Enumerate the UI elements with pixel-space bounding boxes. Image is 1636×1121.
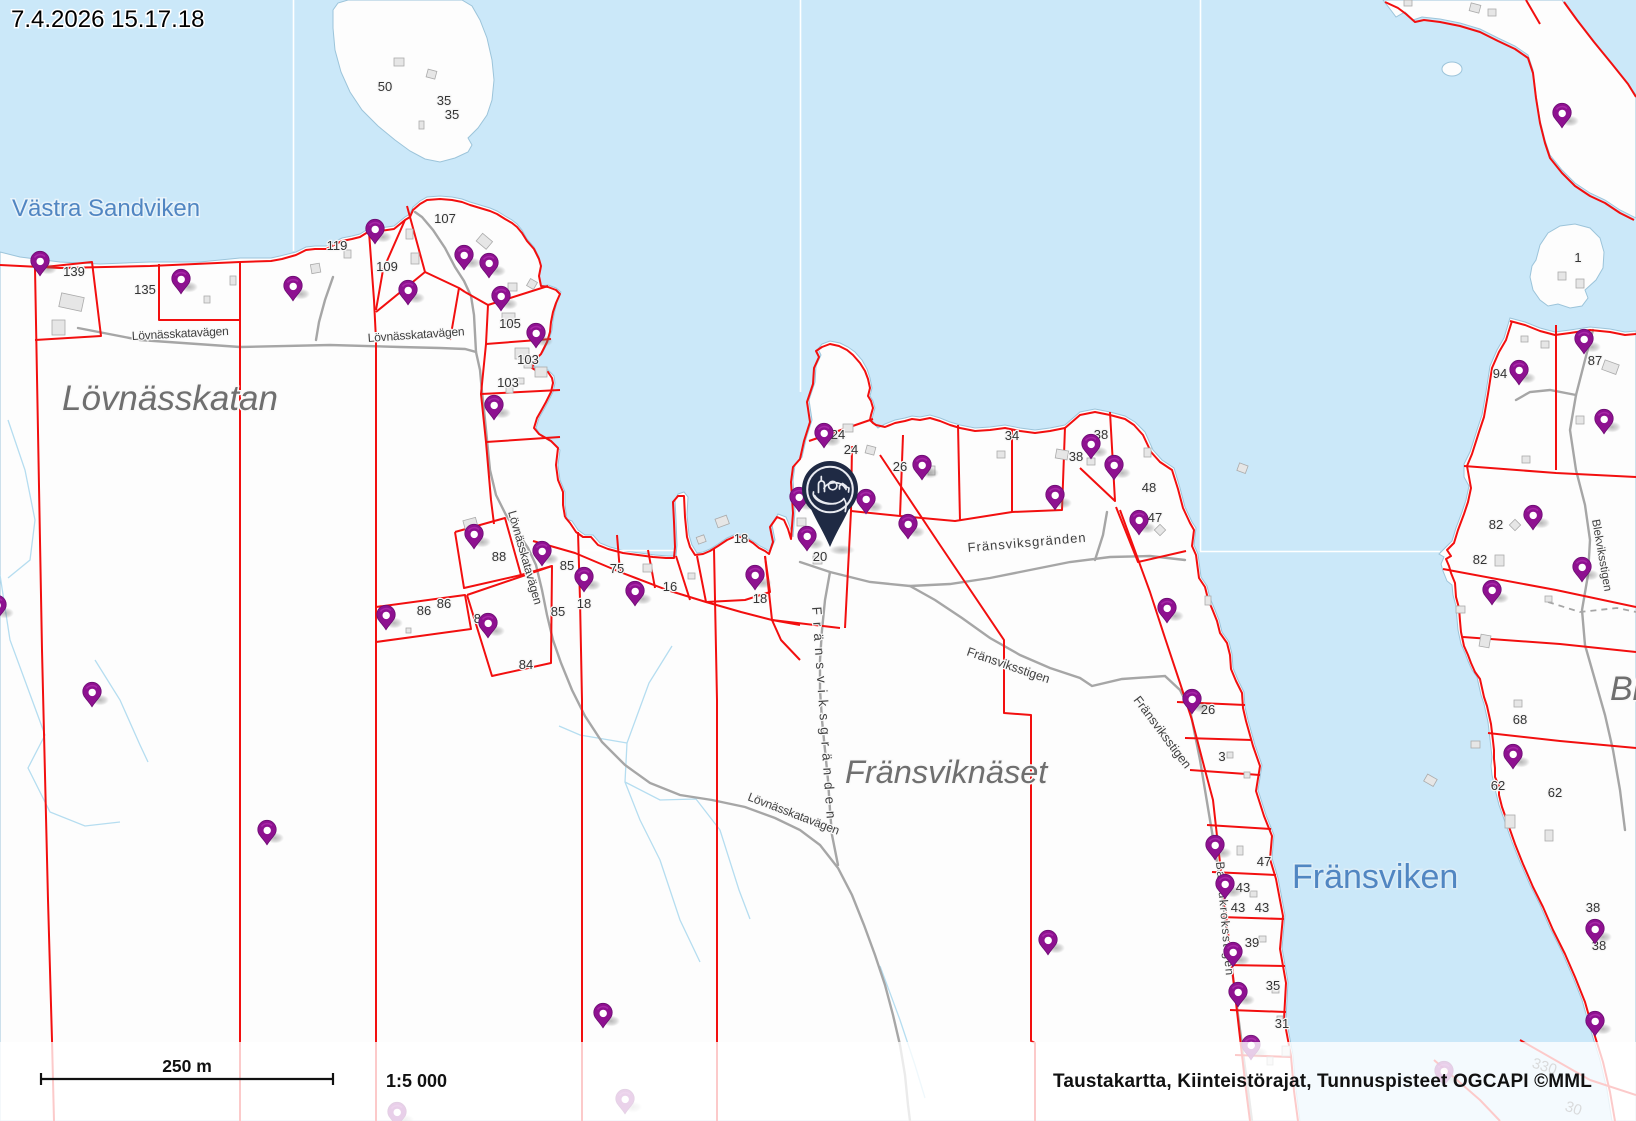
svg-text:88: 88: [492, 549, 506, 564]
svg-text:47: 47: [1148, 510, 1162, 525]
svg-text:Taustakartta, Kiinteistörajat,: Taustakartta, Kiinteistörajat, Tunnuspis…: [1053, 1071, 1592, 1092]
svg-text:3: 3: [1218, 749, 1225, 764]
svg-text:47: 47: [1257, 854, 1271, 869]
svg-text:250 m: 250 m: [162, 1056, 212, 1076]
svg-text:62: 62: [1548, 785, 1562, 800]
svg-text:75: 75: [610, 561, 624, 576]
svg-text:139: 139: [63, 264, 85, 279]
svg-text:31: 31: [1275, 1016, 1289, 1031]
svg-text:35: 35: [445, 107, 459, 122]
svg-text:94: 94: [1493, 366, 1507, 381]
svg-text:18: 18: [734, 531, 748, 546]
svg-text:1:5 000: 1:5 000: [386, 1071, 447, 1091]
svg-text:1: 1: [1574, 250, 1581, 265]
svg-text:26: 26: [893, 459, 907, 474]
svg-text:103: 103: [497, 375, 519, 390]
svg-text:43: 43: [1255, 900, 1269, 915]
svg-text:68: 68: [1513, 712, 1527, 727]
svg-text:20: 20: [813, 549, 827, 564]
svg-text:Lövnässkatan: Lövnässkatan: [62, 379, 278, 418]
svg-text:18: 18: [753, 591, 767, 606]
svg-text:103: 103: [517, 352, 539, 367]
svg-text:87: 87: [1588, 353, 1602, 368]
svg-text:Västra Sandviken: Västra Sandviken: [12, 195, 200, 222]
svg-text:43: 43: [1231, 900, 1245, 915]
svg-text:105: 105: [499, 316, 521, 331]
svg-text:Fränsviken: Fränsviken: [1292, 858, 1458, 896]
svg-text:62: 62: [1491, 778, 1505, 793]
svg-text:85: 85: [551, 604, 565, 619]
svg-text:109: 109: [376, 259, 398, 274]
svg-text:7.4.2026 15.17.18: 7.4.2026 15.17.18: [11, 6, 205, 33]
svg-text:24: 24: [844, 442, 858, 457]
svg-text:34: 34: [1005, 428, 1019, 443]
svg-text:48: 48: [1142, 480, 1156, 495]
svg-text:119: 119: [327, 238, 348, 253]
svg-text:82: 82: [1473, 552, 1487, 567]
svg-text:Bl: Bl: [1610, 670, 1636, 708]
svg-text:84: 84: [519, 657, 533, 672]
svg-text:82: 82: [1489, 517, 1503, 532]
svg-text:107: 107: [434, 211, 456, 226]
svg-text:38: 38: [1069, 449, 1083, 464]
svg-text:39: 39: [1245, 935, 1259, 950]
svg-text:86: 86: [437, 596, 451, 611]
svg-text:135: 135: [134, 282, 156, 297]
svg-text:35: 35: [437, 93, 451, 108]
svg-text:16: 16: [663, 579, 677, 594]
svg-text:38: 38: [1586, 900, 1600, 915]
svg-text:86: 86: [417, 603, 431, 618]
svg-text:85: 85: [560, 558, 574, 573]
svg-text:Fränsviknäset: Fränsviknäset: [845, 754, 1049, 790]
svg-text:50: 50: [378, 79, 392, 94]
svg-text:35: 35: [1266, 978, 1280, 993]
svg-text:18: 18: [577, 596, 591, 611]
